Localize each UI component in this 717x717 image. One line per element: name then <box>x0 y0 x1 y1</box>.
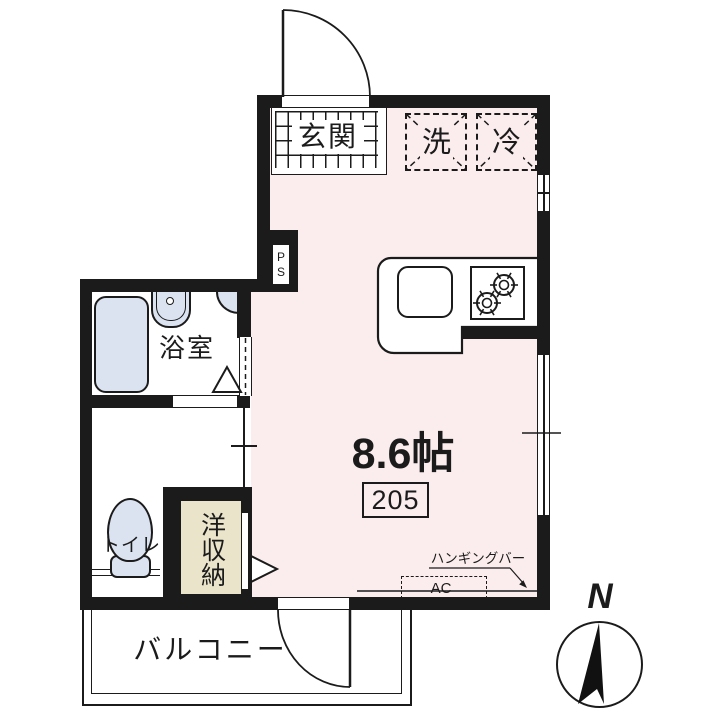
balcony-door-threshold <box>277 597 350 610</box>
entrance-door-arc <box>283 10 370 97</box>
ac-unit-box <box>401 576 487 599</box>
compass-circle <box>556 621 643 708</box>
window-lower-right <box>537 354 550 516</box>
fridge-label: 冷 <box>490 127 523 159</box>
bathroom-label: 浴室 <box>154 333 220 363</box>
entrance-door-threshold <box>281 95 370 108</box>
closet-door-gap <box>241 512 249 590</box>
wall-kitchen-stub <box>462 327 537 339</box>
bathroom-folding-door <box>239 337 252 396</box>
bathroom-passage-threshold <box>172 395 238 408</box>
hanging-bar-label: ハンギングバー <box>428 551 528 566</box>
washbasin-drain <box>166 297 174 305</box>
partition-line <box>243 406 245 488</box>
pipe-space-label: PS <box>272 244 290 285</box>
bath-corner-shelf <box>216 292 239 314</box>
partition-tick <box>231 445 257 447</box>
wall-bath-right <box>237 292 251 338</box>
room-number-box: 205 <box>362 482 429 518</box>
wall-right <box>537 95 550 610</box>
washer-label: 洗 <box>420 127 453 159</box>
closet-label: 洋収納 <box>197 503 225 595</box>
wall-wing-top <box>80 279 270 292</box>
window-upper-right <box>537 174 550 212</box>
toilet-label: トイレ <box>100 534 162 556</box>
compass-north-label: N <box>580 577 620 615</box>
window-divider-line <box>538 192 549 194</box>
entrance-label: 玄関 <box>292 120 364 154</box>
room-area-label: 8.6帖 <box>338 430 468 478</box>
window-glass-line <box>543 355 545 515</box>
bathtub <box>94 296 149 393</box>
bathroom-door-triangle <box>213 367 241 392</box>
floorplan-canvas: PS <box>0 0 717 717</box>
wall-wing-left <box>80 279 92 610</box>
washbasin-inner <box>156 290 186 321</box>
balcony-label: バルコニー <box>128 634 293 666</box>
